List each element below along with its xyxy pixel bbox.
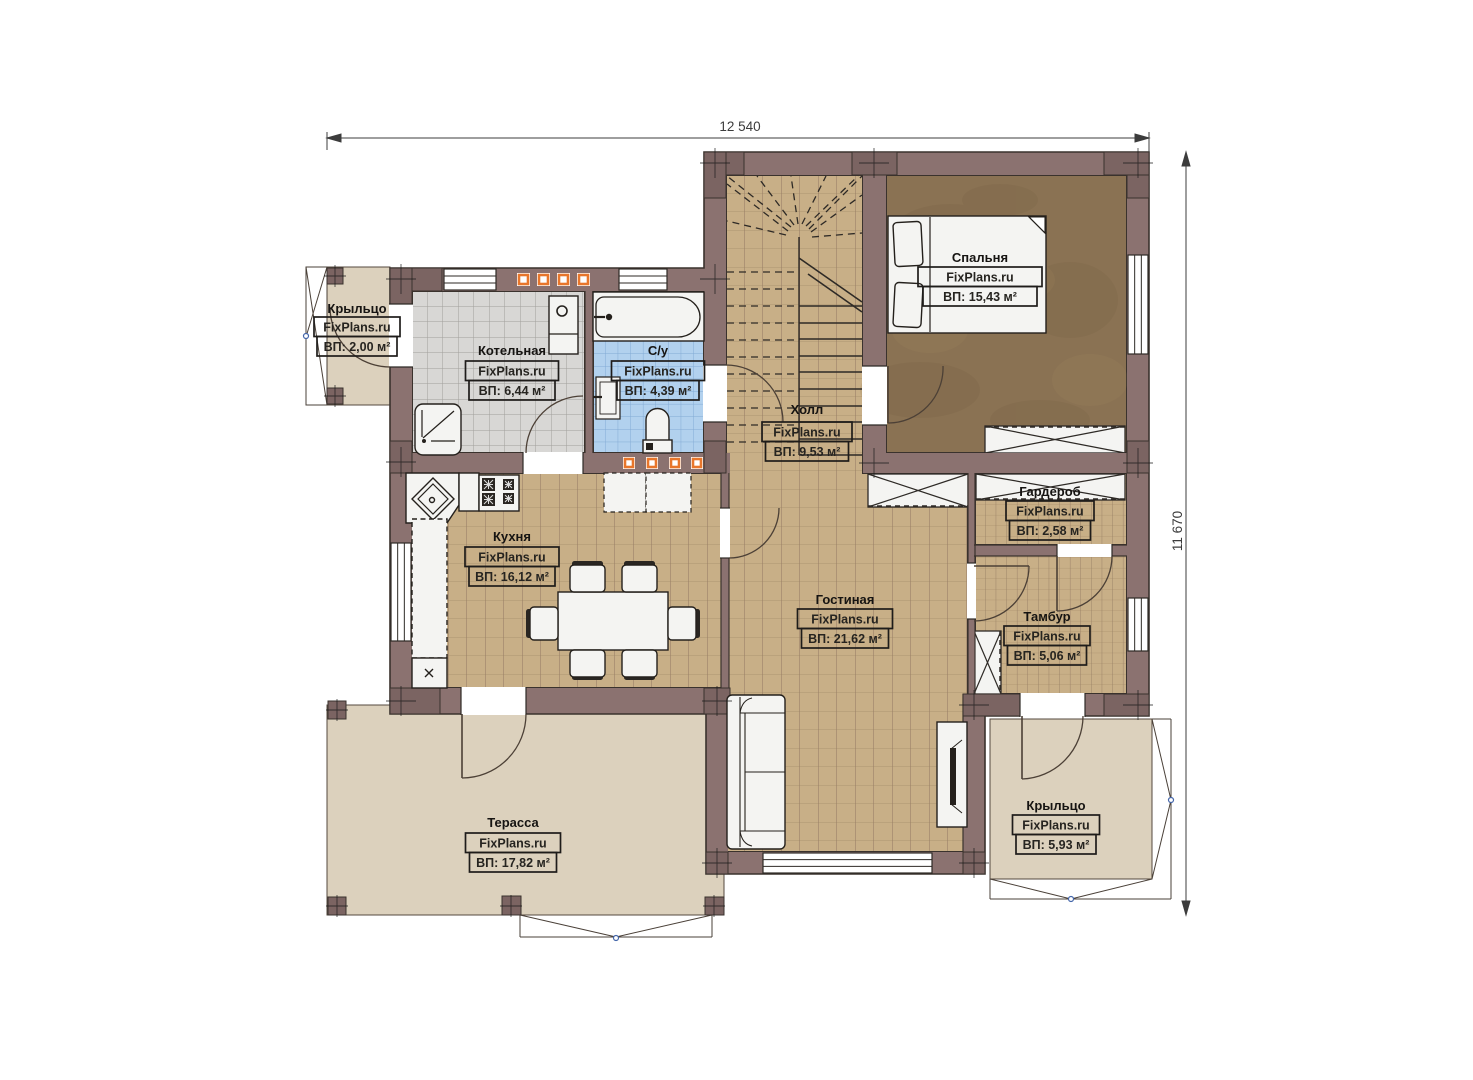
svg-text:FixPlans.ru: FixPlans.ru — [946, 270, 1013, 284]
svg-text:FixPlans.ru: FixPlans.ru — [323, 320, 390, 334]
svg-text:FixPlans.ru: FixPlans.ru — [811, 612, 878, 626]
svg-text:ВП: 6,44 м²: ВП: 6,44 м² — [479, 384, 546, 398]
svg-text:Кухня: Кухня — [493, 529, 531, 544]
svg-text:FixPlans.ru: FixPlans.ru — [1013, 629, 1080, 643]
svg-text:12 540: 12 540 — [719, 119, 760, 134]
svg-text:ВП: 2,00 м²: ВП: 2,00 м² — [324, 340, 391, 354]
svg-text:ВП: 5,06 м²: ВП: 5,06 м² — [1014, 649, 1081, 663]
svg-text:11 670: 11 670 — [1170, 511, 1185, 551]
svg-text:ВП: 5,93 м²: ВП: 5,93 м² — [1023, 838, 1090, 852]
svg-text:FixPlans.ru: FixPlans.ru — [624, 364, 691, 378]
svg-text:Крыльцо: Крыльцо — [1026, 798, 1085, 813]
svg-text:FixPlans.ru: FixPlans.ru — [478, 364, 545, 378]
svg-text:ВП: 21,62 м²: ВП: 21,62 м² — [808, 632, 882, 646]
svg-text:ВП: 9,53 м²: ВП: 9,53 м² — [774, 445, 841, 459]
svg-text:FixPlans.ru: FixPlans.ru — [478, 550, 545, 564]
svg-text:FixPlans.ru: FixPlans.ru — [773, 425, 840, 439]
svg-text:Холл: Холл — [791, 402, 824, 417]
svg-text:Терасса: Терасса — [487, 815, 539, 830]
svg-text:Котельная: Котельная — [478, 343, 546, 358]
svg-text:ВП: 2,58 м²: ВП: 2,58 м² — [1017, 524, 1084, 538]
svg-text:FixPlans.ru: FixPlans.ru — [1022, 818, 1089, 832]
svg-text:ВП: 17,82 м²: ВП: 17,82 м² — [476, 856, 550, 870]
svg-text:Крыльцо: Крыльцо — [327, 301, 386, 316]
svg-text:FixPlans.ru: FixPlans.ru — [479, 836, 546, 850]
svg-text:ВП: 15,43 м²: ВП: 15,43 м² — [943, 290, 1017, 304]
svg-text:ВП: 16,12 м²: ВП: 16,12 м² — [475, 570, 549, 584]
svg-text:Гардероб: Гардероб — [1019, 484, 1080, 499]
svg-text:С/у: С/у — [648, 343, 669, 358]
svg-text:Гостиная: Гостиная — [816, 592, 875, 607]
svg-text:Спальня: Спальня — [952, 250, 1008, 265]
svg-text:FixPlans.ru: FixPlans.ru — [1016, 504, 1083, 518]
svg-text:ВП: 4,39 м²: ВП: 4,39 м² — [625, 384, 692, 398]
svg-text:Тамбур: Тамбур — [1023, 609, 1070, 624]
